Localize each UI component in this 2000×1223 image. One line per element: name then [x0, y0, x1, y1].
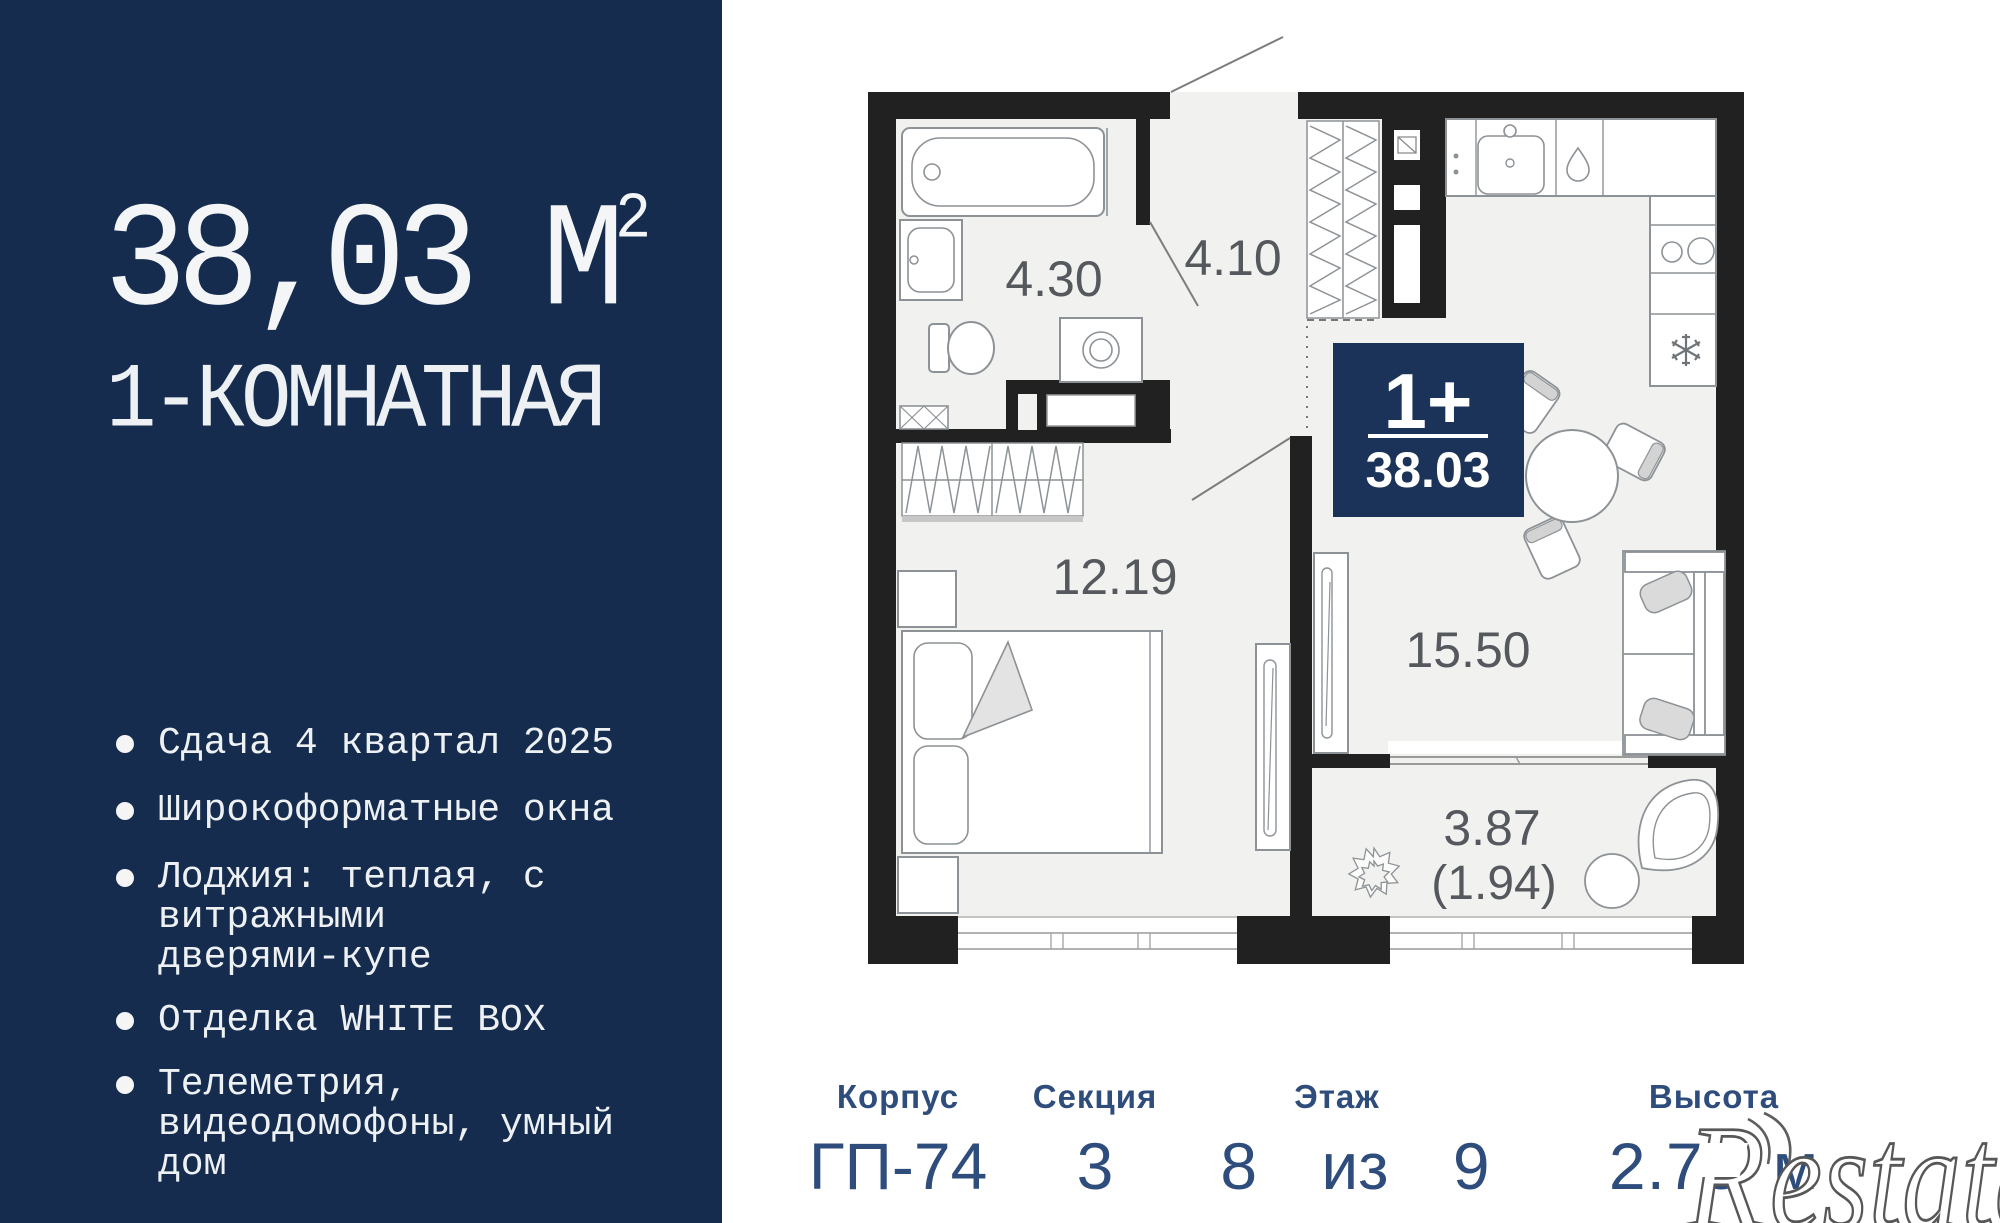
svg-text:estate: estate — [1770, 1095, 2000, 1223]
